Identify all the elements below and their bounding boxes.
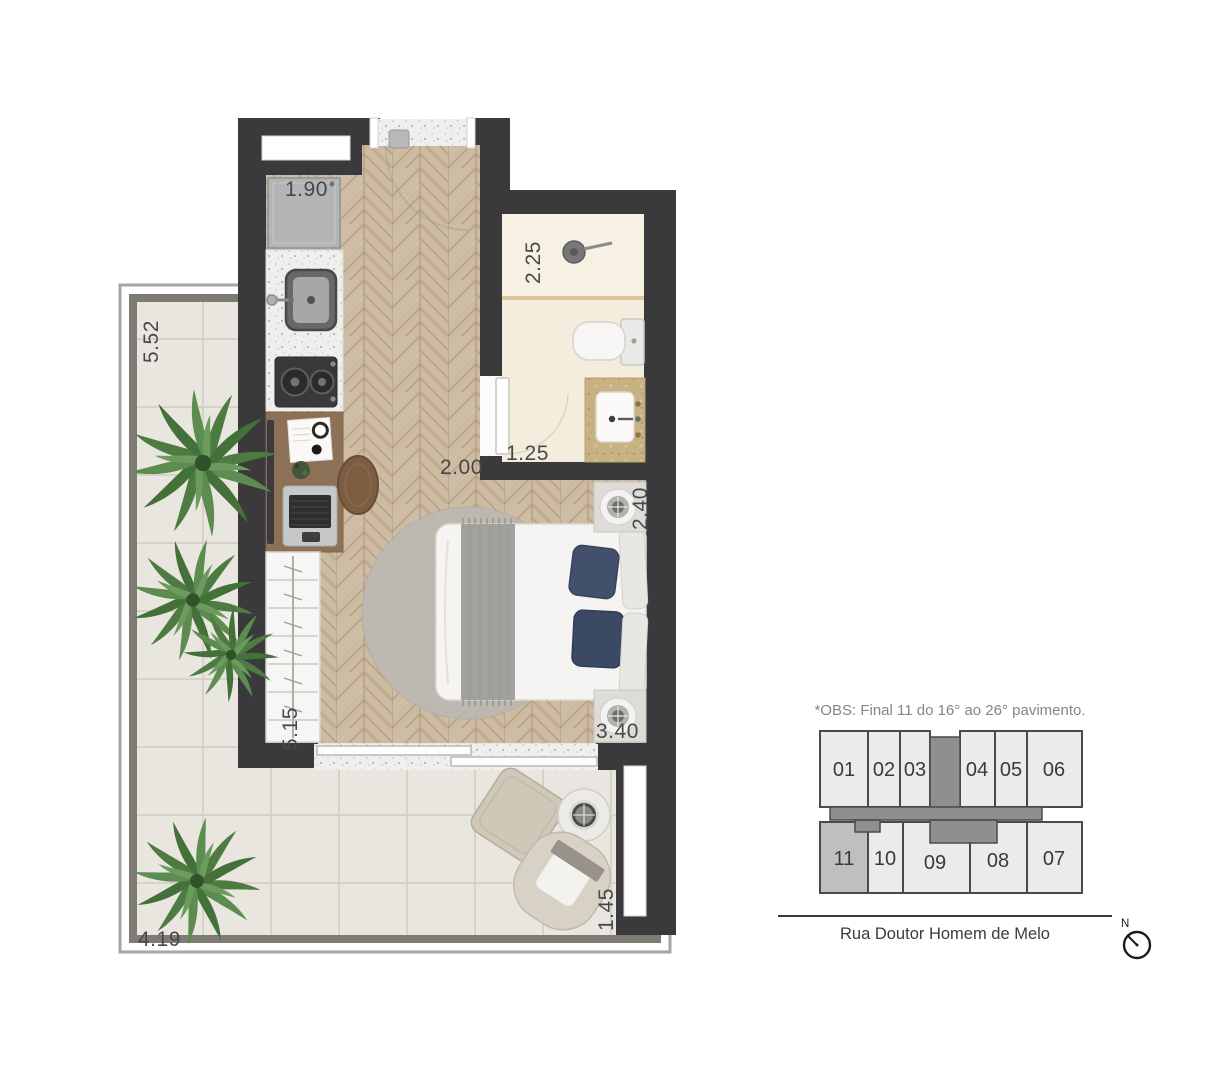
vanity-accessory xyxy=(635,401,641,407)
dim-studio-width-label: 2.00 xyxy=(440,456,483,479)
dim-kitchen-label: 1.90 xyxy=(285,178,328,201)
cooktop-knob xyxy=(330,361,335,366)
shower-head-center xyxy=(570,248,578,256)
key-plan-corridor-notch xyxy=(855,820,880,832)
compass-pivot xyxy=(1136,944,1139,947)
dim-wardrobe-wall-label: 5.15 xyxy=(279,707,302,750)
unit-number: 03 xyxy=(904,759,926,781)
unit-number: 10 xyxy=(874,848,896,870)
unit-number: 01 xyxy=(833,759,855,781)
notepad xyxy=(288,418,333,463)
pillow-bottom xyxy=(572,610,625,669)
desk-plant-leaf xyxy=(303,471,308,476)
entrance-jamb-left xyxy=(370,118,378,148)
sink-drain xyxy=(307,296,315,304)
vanity-accessory xyxy=(635,432,641,438)
desk-side-panel xyxy=(267,420,274,544)
apartment-floor-plan: 1.90 2.25 5.52 1.25 2.00 2.40 5.15 3.40 … xyxy=(0,0,760,1080)
sink-faucet-base xyxy=(267,295,277,305)
bed-runner xyxy=(461,524,515,700)
floor-plan-page: 1.90 2.25 5.52 1.25 2.00 2.40 5.15 3.40 … xyxy=(0,0,1231,1080)
unit-number-highlighted: 11 xyxy=(834,848,855,870)
unit-number: 09 xyxy=(924,852,946,874)
dim-bed-recess-top-label: 2.40 xyxy=(629,487,652,530)
coffee-cup xyxy=(313,423,328,438)
street-divider-line xyxy=(778,915,1112,917)
basin-drain xyxy=(609,416,615,422)
key-plan-diagram: 01 02 03 04 05 06 11 10 09 08 07 xyxy=(805,720,1105,910)
headboard-cushion-top xyxy=(619,528,648,609)
dim-bed-recess-bottom-label: 3.40 xyxy=(596,720,639,743)
kitchen xyxy=(266,178,343,412)
unit-number: 05 xyxy=(1000,759,1022,781)
key-plan-corridor xyxy=(830,807,1042,820)
sliding-door-panel-left xyxy=(317,746,471,755)
dim-terrace-bottom-label: 4.19 xyxy=(138,928,181,951)
dim-bathroom-length-label: 2.25 xyxy=(522,241,545,284)
unit-number: 02 xyxy=(873,759,895,781)
laptop-keyboard xyxy=(289,495,331,528)
street-name: Rua Doutor Homem de Melo xyxy=(778,925,1112,944)
burner-center xyxy=(291,378,300,387)
burner-center xyxy=(318,378,326,386)
toilet-flush-button xyxy=(631,338,636,343)
pillow-top xyxy=(568,544,620,599)
vanity-basin xyxy=(596,392,634,442)
compass-graphic xyxy=(1116,916,1162,966)
headboard-cushion-bottom xyxy=(619,612,648,695)
entrance-jamb-right xyxy=(467,118,475,148)
wall-bathroom-top xyxy=(480,190,676,214)
unit-number: 06 xyxy=(1043,759,1065,781)
entrance-doormat xyxy=(389,130,409,148)
desk-plant-leaf xyxy=(295,464,300,469)
key-plan-core-bottom xyxy=(930,820,997,843)
cooktop-knob xyxy=(330,396,335,401)
basin-faucet-base xyxy=(635,416,641,422)
fridge-handle xyxy=(330,182,335,187)
kitchen-window xyxy=(262,136,350,160)
laptop-touchpad xyxy=(302,532,320,542)
dim-bathroom-width-label: 1.25 xyxy=(506,442,549,465)
sliding-door xyxy=(314,744,598,770)
unit-number: 07 xyxy=(1043,848,1065,870)
dim-terrace-right-end-label: 1.45 xyxy=(595,888,618,931)
obs-note: *OBS: Final 11 do 16° ao 26° pavimento. xyxy=(780,702,1120,719)
sink-faucet-head xyxy=(288,297,294,303)
laptop xyxy=(283,486,337,546)
toilet-icon xyxy=(573,322,625,360)
sliding-door-panel-right xyxy=(451,757,597,766)
desk-plant xyxy=(292,461,310,479)
terrace-window xyxy=(624,766,646,916)
bathroom-tile-strip xyxy=(502,296,644,300)
wall-bathroom-right xyxy=(644,298,676,480)
dim-terrace-left-label: 5.52 xyxy=(140,320,163,363)
unit-number: 04 xyxy=(966,759,988,781)
north-compass-icon: N xyxy=(1116,916,1162,966)
unit-number: 08 xyxy=(987,850,1009,872)
